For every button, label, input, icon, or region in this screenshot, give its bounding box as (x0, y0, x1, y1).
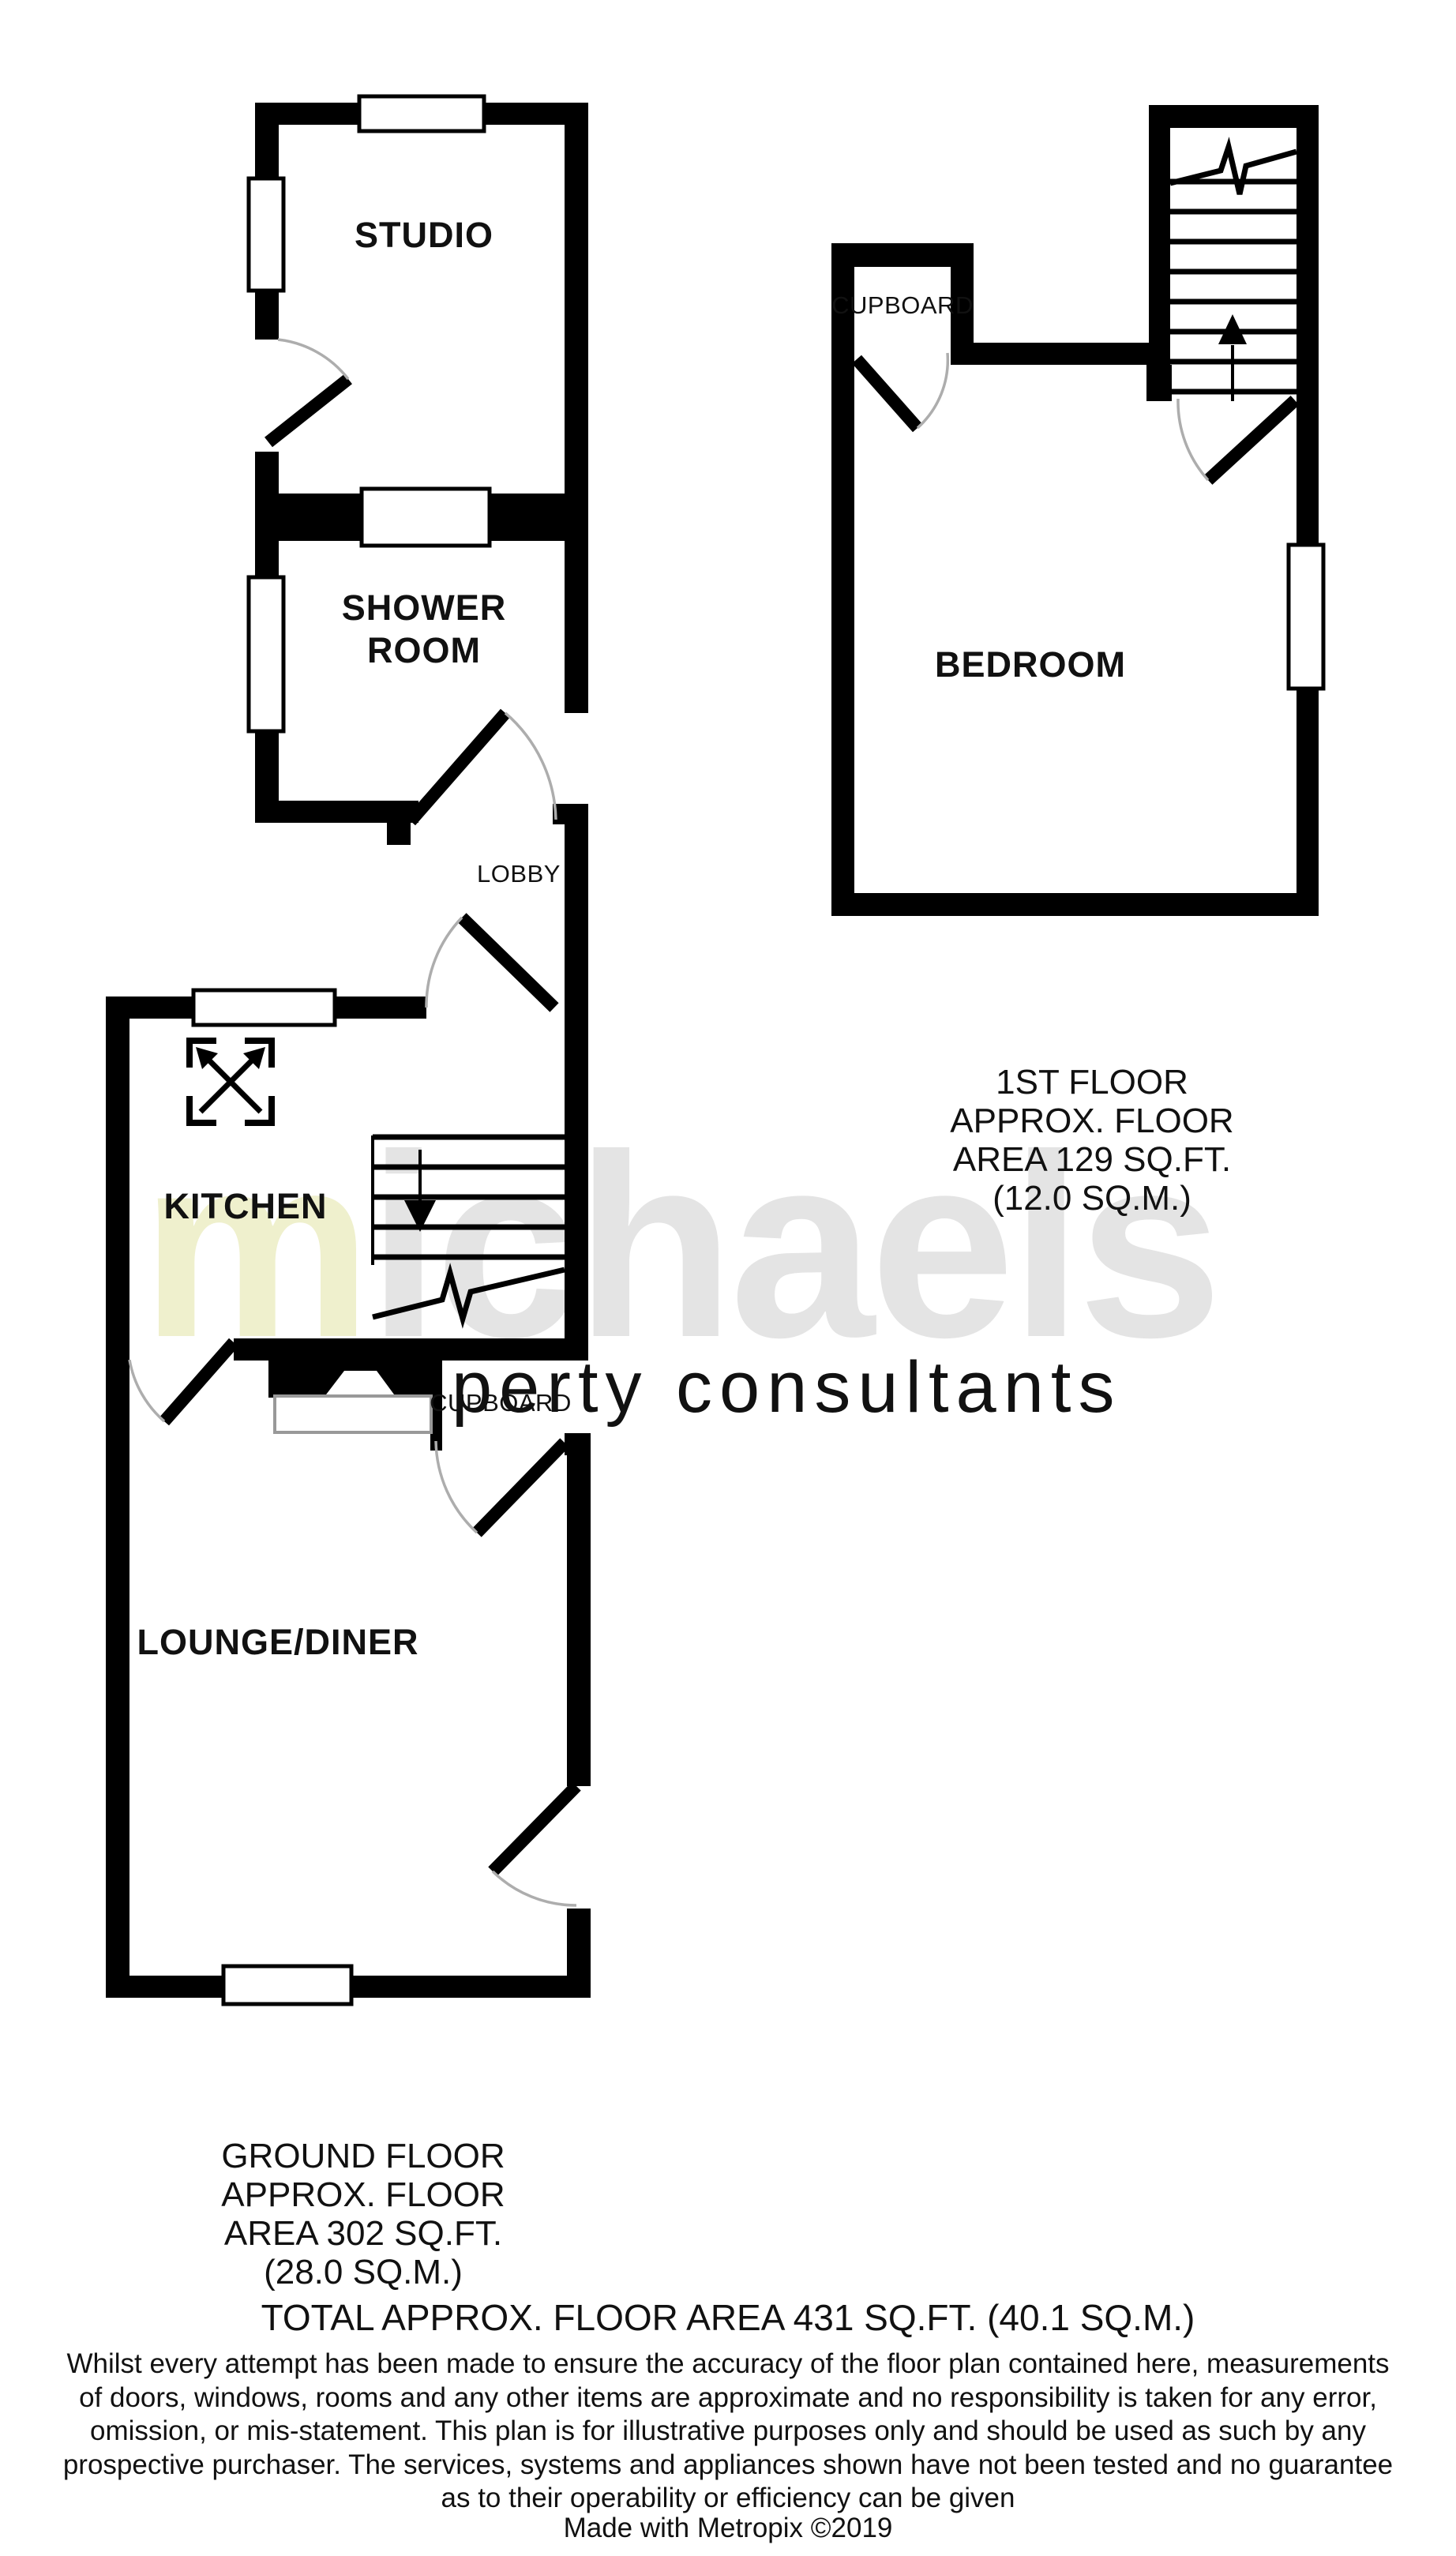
disclaimer-line: as to their operability or efficiency ca… (441, 2483, 1015, 2513)
ground-floor-caption: GROUND FLOOR APPROX. FLOOR AREA 302 SQ.F… (221, 2137, 505, 2291)
caption-line: (12.0 SQ.M.) (993, 1179, 1191, 1218)
window (223, 1966, 351, 2004)
door-swing-arc (493, 1871, 576, 1905)
window (249, 178, 283, 291)
floorplan-image: michaels property consultants (0, 0, 1456, 2556)
door-entrance (493, 1786, 576, 1905)
window (193, 990, 335, 1025)
door-lobby-kitchen (426, 918, 554, 1008)
first-floor-plan: CUPBOARD BEDROOM (831, 105, 1323, 916)
room-label-cupboard-first: CUPBOARD (831, 291, 974, 319)
door-leaf (857, 359, 918, 428)
caption-line: GROUND FLOOR (221, 2137, 505, 2175)
caption-line: (28.0 SQ.M.) (264, 2253, 463, 2291)
room-label-kitchen: KITCHEN (164, 1186, 328, 1226)
disclaimer-text: Whilst every attempt has been made to en… (63, 2348, 1393, 2543)
window (249, 577, 283, 731)
caption-line: AREA 302 SQ.FT. (224, 2214, 502, 2253)
first-floor-caption: 1ST FLOOR APPROX. FLOOR AREA 129 SQ.FT. … (950, 1063, 1233, 1218)
room-label-studio: STUDIO (355, 215, 493, 255)
metropix-credit: Made with Metropix ©2019 (564, 2513, 893, 2543)
door-leaf (493, 1786, 576, 1871)
door-swing-arc (918, 353, 948, 428)
caption-line: APPROX. FLOOR (221, 2175, 505, 2214)
window (359, 96, 484, 131)
window (1289, 545, 1323, 689)
room-label-lobby: LOBBY (477, 860, 561, 888)
door-swing-arc (1178, 399, 1208, 480)
door-leaf (1208, 400, 1295, 480)
window (362, 489, 490, 546)
door-leaf (268, 379, 348, 442)
ground-floor-room-labels: STUDIO SHOWER ROOM LOBBY KITCHEN CUPBOAR… (137, 215, 571, 1662)
door-swing-arc (436, 1441, 477, 1533)
door-bedroom-stairs (1178, 399, 1295, 480)
room-label-shower-line1: SHOWER (342, 587, 507, 628)
caption-total-area: TOTAL APPROX. FLOOR AREA 431 SQ.FT. (40.… (261, 2297, 1195, 2338)
caption-line: APPROX. FLOOR (950, 1102, 1233, 1140)
caption-line: 1ST FLOOR (996, 1063, 1188, 1102)
caption-line: AREA 129 SQ.FT. (953, 1140, 1231, 1179)
disclaimer-line: Whilst every attempt has been made to en… (66, 2348, 1389, 2379)
room-label-shower-line2: ROOM (367, 630, 481, 670)
walls (831, 105, 1319, 916)
door-leaf (462, 918, 554, 1008)
fireplace-symbol (268, 1361, 442, 1432)
room-label-lounge-diner: LOUNGE/DINER (137, 1622, 418, 1662)
door-swing-arc (426, 918, 462, 1008)
stairs-up (1170, 147, 1297, 401)
room-label-bedroom: BEDROOM (935, 644, 1126, 685)
windows (1289, 545, 1323, 689)
disclaimer-line: prospective purchaser. The services, sys… (63, 2449, 1393, 2480)
ground-floor-plan: STUDIO SHOWER ROOM LOBBY KITCHEN CUPBOAR… (106, 96, 591, 2004)
door-cupboard-first (857, 353, 948, 428)
door-leaf (411, 713, 505, 821)
door-leaf (477, 1443, 565, 1533)
door-shower-room (411, 713, 556, 821)
door-studio (268, 340, 348, 442)
disclaimer-line: of doors, windows, rooms and any other i… (79, 2382, 1377, 2413)
disclaimer-line: omission, or mis-statement. This plan is… (90, 2415, 1366, 2446)
door-cupboard-ground (436, 1441, 565, 1533)
door-swing-arc (505, 713, 556, 820)
room-label-cupboard-ground: CUPBOARD (430, 1389, 572, 1417)
door-swing-arc (278, 340, 348, 379)
